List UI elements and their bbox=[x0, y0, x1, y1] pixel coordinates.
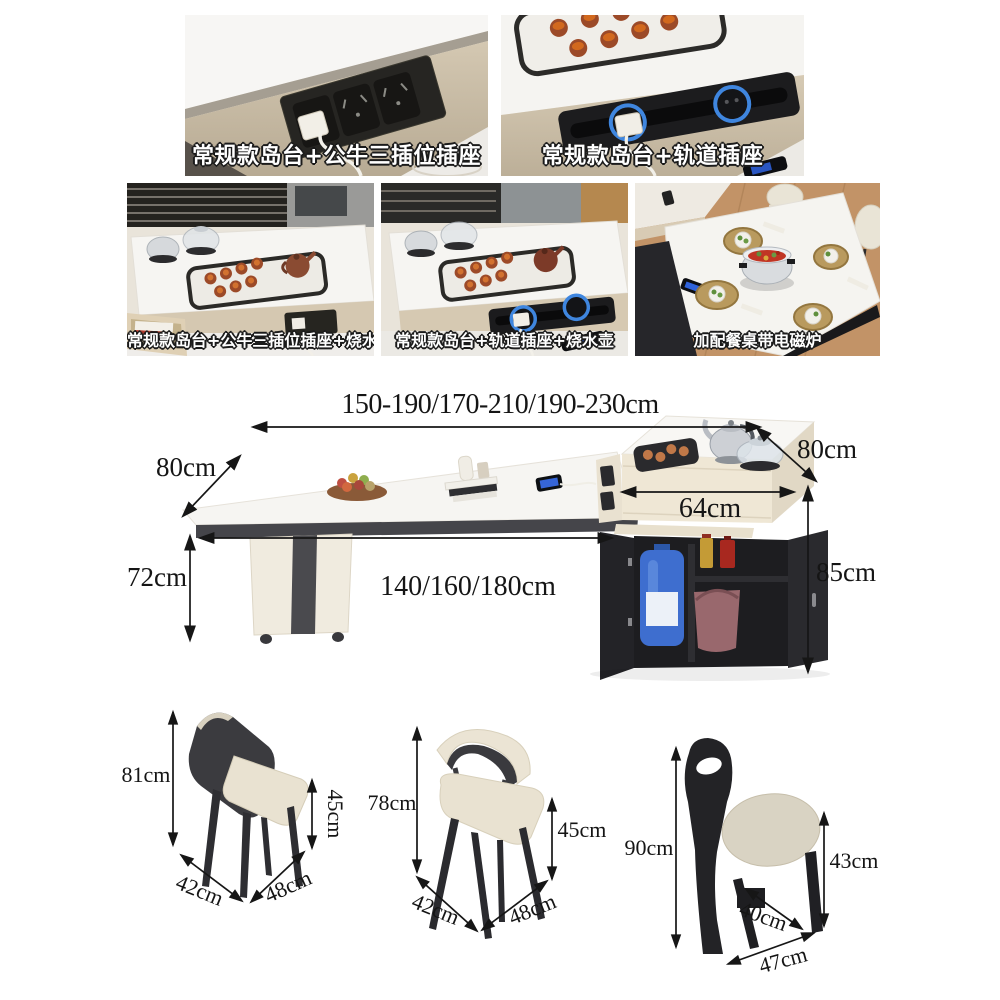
dim-chair2-width: 48cm bbox=[505, 888, 560, 929]
photo-caption: 常规款岛台+轨道插座 bbox=[501, 138, 804, 170]
chair-3: 90cm 43cm 40cm 47cm bbox=[625, 738, 879, 978]
tabletop-surface bbox=[183, 452, 638, 525]
plug bbox=[513, 312, 530, 327]
cabinet-divider bbox=[688, 544, 695, 662]
dim-chair3-depth: 40cm bbox=[736, 896, 790, 936]
photo-caption: 常规款岛台+公牛三插位插座+烧水壶 bbox=[127, 327, 374, 351]
front-leg bbox=[805, 851, 823, 933]
dim-base-length: 140/160/180cm bbox=[380, 571, 556, 602]
photo-caption: 常规款岛台+公牛三插位插座 bbox=[185, 138, 488, 170]
feature-card-bull-socket-kettle: 常规款岛台+公牛三插位插座+烧水壶 bbox=[127, 183, 374, 356]
chair-2: 78cm 45cm 42cm 48cm bbox=[368, 728, 607, 939]
island-left-face bbox=[596, 454, 623, 523]
island-table-illustration bbox=[183, 416, 830, 681]
chair-1: 81cm 45cm 42cm 48cm bbox=[122, 712, 348, 911]
window bbox=[295, 186, 347, 216]
water-bottle bbox=[640, 544, 684, 646]
dim-tabletop-depth: 80cm bbox=[156, 452, 216, 482]
photo-caption: 加配餐桌带电磁炉 bbox=[635, 327, 880, 351]
dim-tabletop-height: 72cm bbox=[127, 562, 187, 592]
dim-chair3-seat-height: 43cm bbox=[830, 848, 879, 873]
dim-chair3-height: 90cm bbox=[625, 835, 674, 860]
cabinet-door-left bbox=[600, 532, 634, 680]
dim-island-height: 85cm bbox=[816, 557, 876, 587]
dim-chair1-height: 81cm bbox=[122, 762, 171, 787]
side-socket bbox=[600, 465, 615, 486]
dim-chair2-seat-height: 45cm bbox=[558, 817, 607, 842]
dim-length-options: 150-190/170-210/190-230cm bbox=[341, 389, 659, 420]
feature-card-bull-socket: 常规款岛台+公牛三插位插座 bbox=[185, 15, 488, 176]
dim-chair1-seat-height: 45cm bbox=[323, 790, 348, 839]
product-spec-image: 常规款岛台+公牛三插位插座 bbox=[0, 0, 1000, 1000]
chair-seat bbox=[223, 756, 308, 825]
dim-chair2-height: 78cm bbox=[368, 790, 417, 815]
cabinet-shelf bbox=[695, 576, 788, 582]
table-dimension-diagram: 150-190/170-210/190-230cm 80cm 72cm 140/… bbox=[0, 368, 1000, 690]
feature-card-track-socket-kettle: 常规款岛台+轨道插座+烧水壶 bbox=[381, 183, 628, 356]
chair-dimension-diagrams: 81cm 45cm 42cm 48cm 78cm 45cm bbox=[0, 690, 1000, 1000]
wood-floor-strip bbox=[581, 183, 628, 223]
dim-chair1-depth: 42cm bbox=[172, 869, 227, 910]
feature-card-track-socket: 常规款岛台+轨道插座 bbox=[501, 15, 804, 176]
plug bbox=[615, 112, 643, 137]
fruit-bowl bbox=[327, 473, 387, 501]
island-cabinet bbox=[590, 416, 830, 681]
bucket bbox=[694, 590, 740, 652]
floor-shadow bbox=[590, 667, 830, 681]
side-socket bbox=[600, 491, 615, 510]
table-leg bbox=[250, 534, 352, 644]
pullout-board bbox=[614, 524, 754, 538]
photo-caption: 常规款岛台+轨道插座+烧水壶 bbox=[381, 327, 628, 351]
window bbox=[501, 183, 581, 223]
dim-island-depth: 80cm bbox=[797, 434, 857, 464]
feature-card-induction-table: 加配餐桌带电磁炉 bbox=[635, 183, 880, 356]
dim-chair3-width: 47cm bbox=[756, 941, 810, 978]
hotpot bbox=[739, 247, 795, 291]
dim-island-width: 64cm bbox=[679, 493, 741, 524]
